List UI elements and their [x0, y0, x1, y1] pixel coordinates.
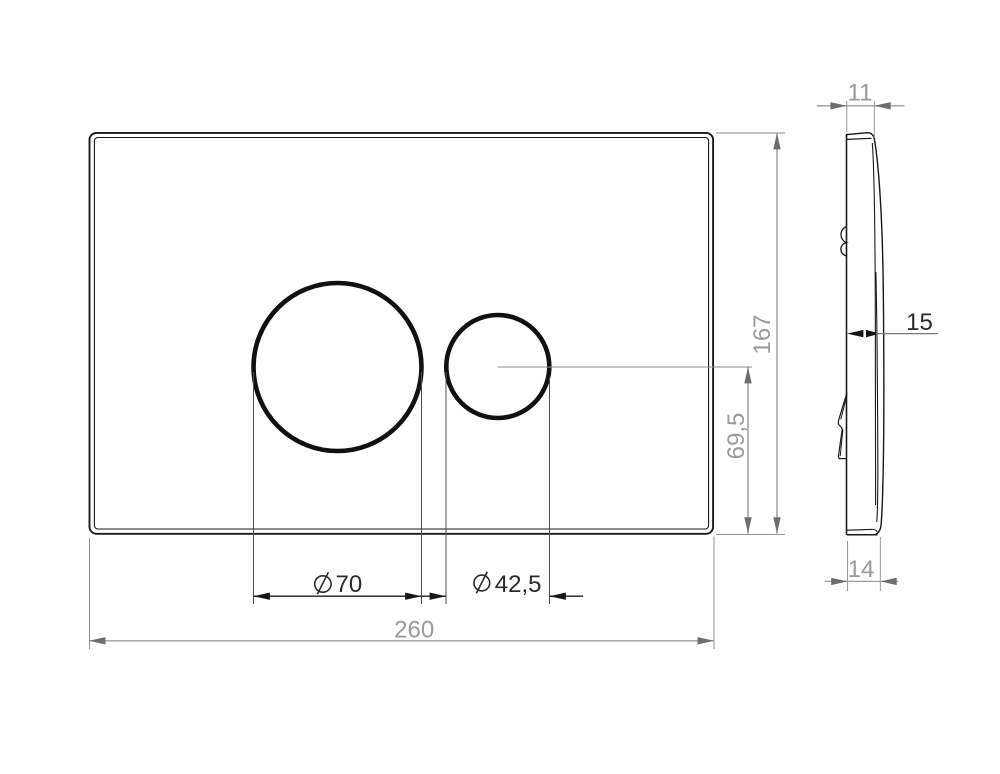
svg-text:167: 167	[749, 314, 776, 354]
svg-text:70: 70	[336, 571, 363, 598]
svg-text:15: 15	[906, 309, 933, 336]
svg-text:69,5: 69,5	[723, 413, 750, 460]
svg-text:260: 260	[394, 616, 434, 643]
svg-text:11: 11	[848, 80, 873, 107]
svg-text:14: 14	[848, 556, 875, 583]
svg-text:42,5: 42,5	[495, 571, 542, 598]
